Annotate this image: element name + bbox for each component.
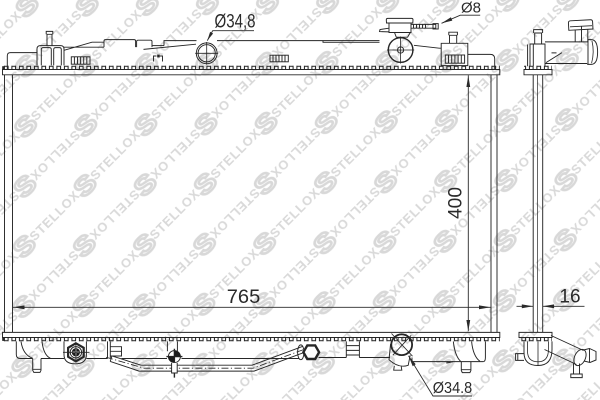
svg-text:765: 765 — [227, 287, 261, 308]
svg-text:Ø8: Ø8 — [461, 0, 481, 17]
svg-text:16: 16 — [559, 287, 580, 308]
svg-text:Ø34,8: Ø34,8 — [215, 12, 256, 33]
svg-text:400: 400 — [446, 187, 467, 219]
svg-text:Ø34.8: Ø34.8 — [433, 380, 473, 397]
